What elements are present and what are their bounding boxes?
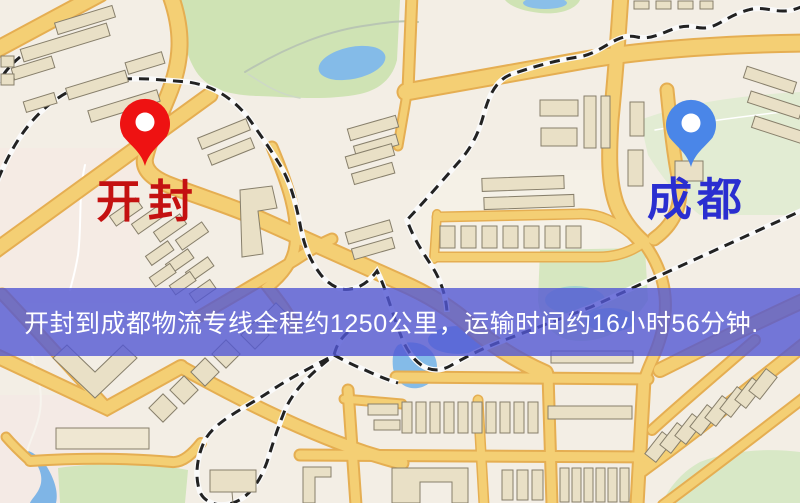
- route-info-text: 开封到成都物流专线全程约1250公里，运输时间约16小时56分钟.: [24, 304, 759, 340]
- map-canvas: [0, 0, 800, 503]
- destination-pin-icon[interactable]: [663, 99, 719, 171]
- route-info-banner: 开封到成都物流专线全程约1250公里，运输时间约16小时56分钟.: [0, 288, 800, 356]
- origin-pin-icon[interactable]: [117, 98, 173, 170]
- map-view: 开封 成都 开封到成都物流专线全程约1250公里，运输时间约16小时56分钟.: [0, 0, 800, 503]
- origin-city-label: 开封: [96, 179, 200, 224]
- destination-pin-hole: [682, 114, 701, 133]
- destination-pin-shape: [666, 100, 716, 167]
- origin-pin-hole: [136, 113, 155, 132]
- origin-pin-shape: [120, 99, 170, 166]
- destination-city-label: 成都: [647, 177, 747, 222]
